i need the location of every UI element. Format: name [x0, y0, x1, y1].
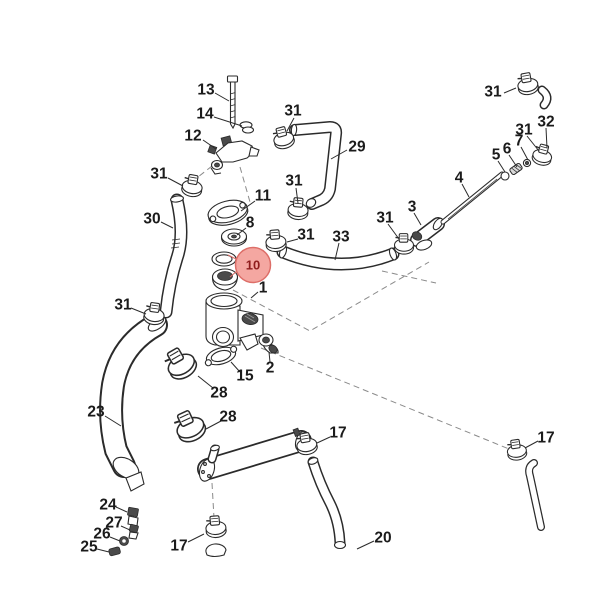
part-label-3[interactable]: 3 [408, 199, 417, 216]
part-label-23[interactable]: 23 [87, 404, 105, 421]
part-label-12[interactable]: 12 [184, 128, 201, 145]
parts-diagram-page: 1314123129311130831313231765433131331312… [0, 0, 600, 600]
hose-clamp [531, 143, 555, 168]
label-leader-line [525, 441, 538, 448]
hose-clamp [506, 438, 528, 461]
part-label-17[interactable]: 17 [329, 425, 346, 442]
part-ball-5 [501, 172, 509, 180]
part-label-11[interactable]: 11 [255, 188, 272, 205]
hose-clamp [171, 407, 209, 446]
hose-clamp [287, 197, 309, 220]
part-rod-4 [443, 174, 502, 222]
part-label-33[interactable]: 33 [332, 229, 350, 246]
part-label-17[interactable]: 17 [537, 430, 554, 447]
label-leader-line [168, 178, 183, 186]
part-label-29[interactable]: 29 [348, 139, 366, 156]
part-fitting-27 [129, 524, 139, 539]
part-label-17[interactable]: 17 [170, 538, 187, 555]
part-label-5[interactable]: 5 [492, 147, 501, 164]
part-label-24[interactable]: 24 [99, 497, 117, 514]
part-label-32[interactable]: 32 [537, 114, 554, 131]
exploded-parts-diagram: 1314123129311130831313231765433131331312… [0, 0, 600, 600]
label-leader-line [110, 537, 120, 541]
part-hose-29 [291, 124, 336, 209]
part-hose-20 [307, 456, 345, 548]
part-washer-7 [523, 159, 530, 166]
part-washer-14 [240, 122, 254, 133]
part-washer-26 [120, 537, 129, 546]
part-label-7[interactable]: 7 [515, 133, 524, 150]
part-label-28[interactable]: 28 [219, 409, 237, 426]
part-label-20[interactable]: 20 [374, 530, 391, 547]
hose-clamp [181, 173, 204, 198]
part-fitting-2 [259, 334, 279, 355]
part-end-cap [206, 544, 226, 557]
part-spring-6 [509, 163, 523, 176]
part-label-31[interactable]: 31 [484, 84, 502, 101]
hose-clamp [161, 343, 200, 383]
label-leader-line [251, 292, 258, 298]
label-leader-line [116, 507, 127, 512]
label-leader-line [357, 541, 374, 549]
part-label-13[interactable]: 13 [197, 82, 215, 99]
label-leader-line [161, 222, 173, 228]
label-leader-line [287, 239, 298, 242]
part-label-1[interactable]: 1 [259, 280, 268, 297]
highlighted-part-number[interactable]: 10 [246, 258, 260, 273]
part-thermostat-8 [222, 229, 247, 246]
part-label-31[interactable]: 31 [285, 173, 303, 190]
label-leader-line [215, 93, 229, 101]
part-fitting-24 [127, 507, 138, 526]
part-hose-right-edge [529, 463, 541, 527]
part-label-30[interactable]: 30 [143, 211, 160, 228]
part-label-14[interactable]: 14 [196, 106, 214, 123]
label-leader-line [317, 437, 330, 443]
part-hose-23 [109, 314, 168, 491]
part-oring [212, 252, 236, 266]
part-fitting-25 [108, 547, 120, 557]
part-label-25[interactable]: 25 [80, 539, 98, 556]
part-fitting-3 [411, 217, 445, 252]
part-fitting-12 [208, 136, 259, 174]
part-label-31[interactable]: 31 [150, 166, 168, 183]
part-hose-30 [166, 195, 184, 312]
part-bolt-13 [228, 76, 238, 128]
label-leader-line [97, 549, 109, 552]
part-seal-10 [212, 269, 237, 290]
hose-clamp [265, 229, 287, 252]
hose-clamp [516, 71, 539, 96]
label-leader-line [214, 117, 242, 126]
part-label-31[interactable]: 31 [114, 297, 132, 314]
label-leader-line [188, 534, 204, 542]
label-leader-line [131, 308, 146, 314]
hose-clamp [205, 515, 227, 538]
part-label-6[interactable]: 6 [503, 141, 512, 158]
part-label-28[interactable]: 28 [210, 385, 228, 402]
part-label-31[interactable]: 31 [376, 210, 394, 227]
part-label-31[interactable]: 31 [284, 103, 302, 120]
part-hose-stub-top-right [542, 90, 547, 105]
part-label-4[interactable]: 4 [455, 170, 464, 187]
part-label-31[interactable]: 31 [297, 227, 315, 244]
part-cover-11 [206, 197, 250, 229]
label-leader-line [504, 88, 516, 93]
part-label-8[interactable]: 8 [246, 215, 255, 232]
part-label-15[interactable]: 15 [236, 368, 254, 385]
part-label-2[interactable]: 2 [266, 360, 275, 377]
